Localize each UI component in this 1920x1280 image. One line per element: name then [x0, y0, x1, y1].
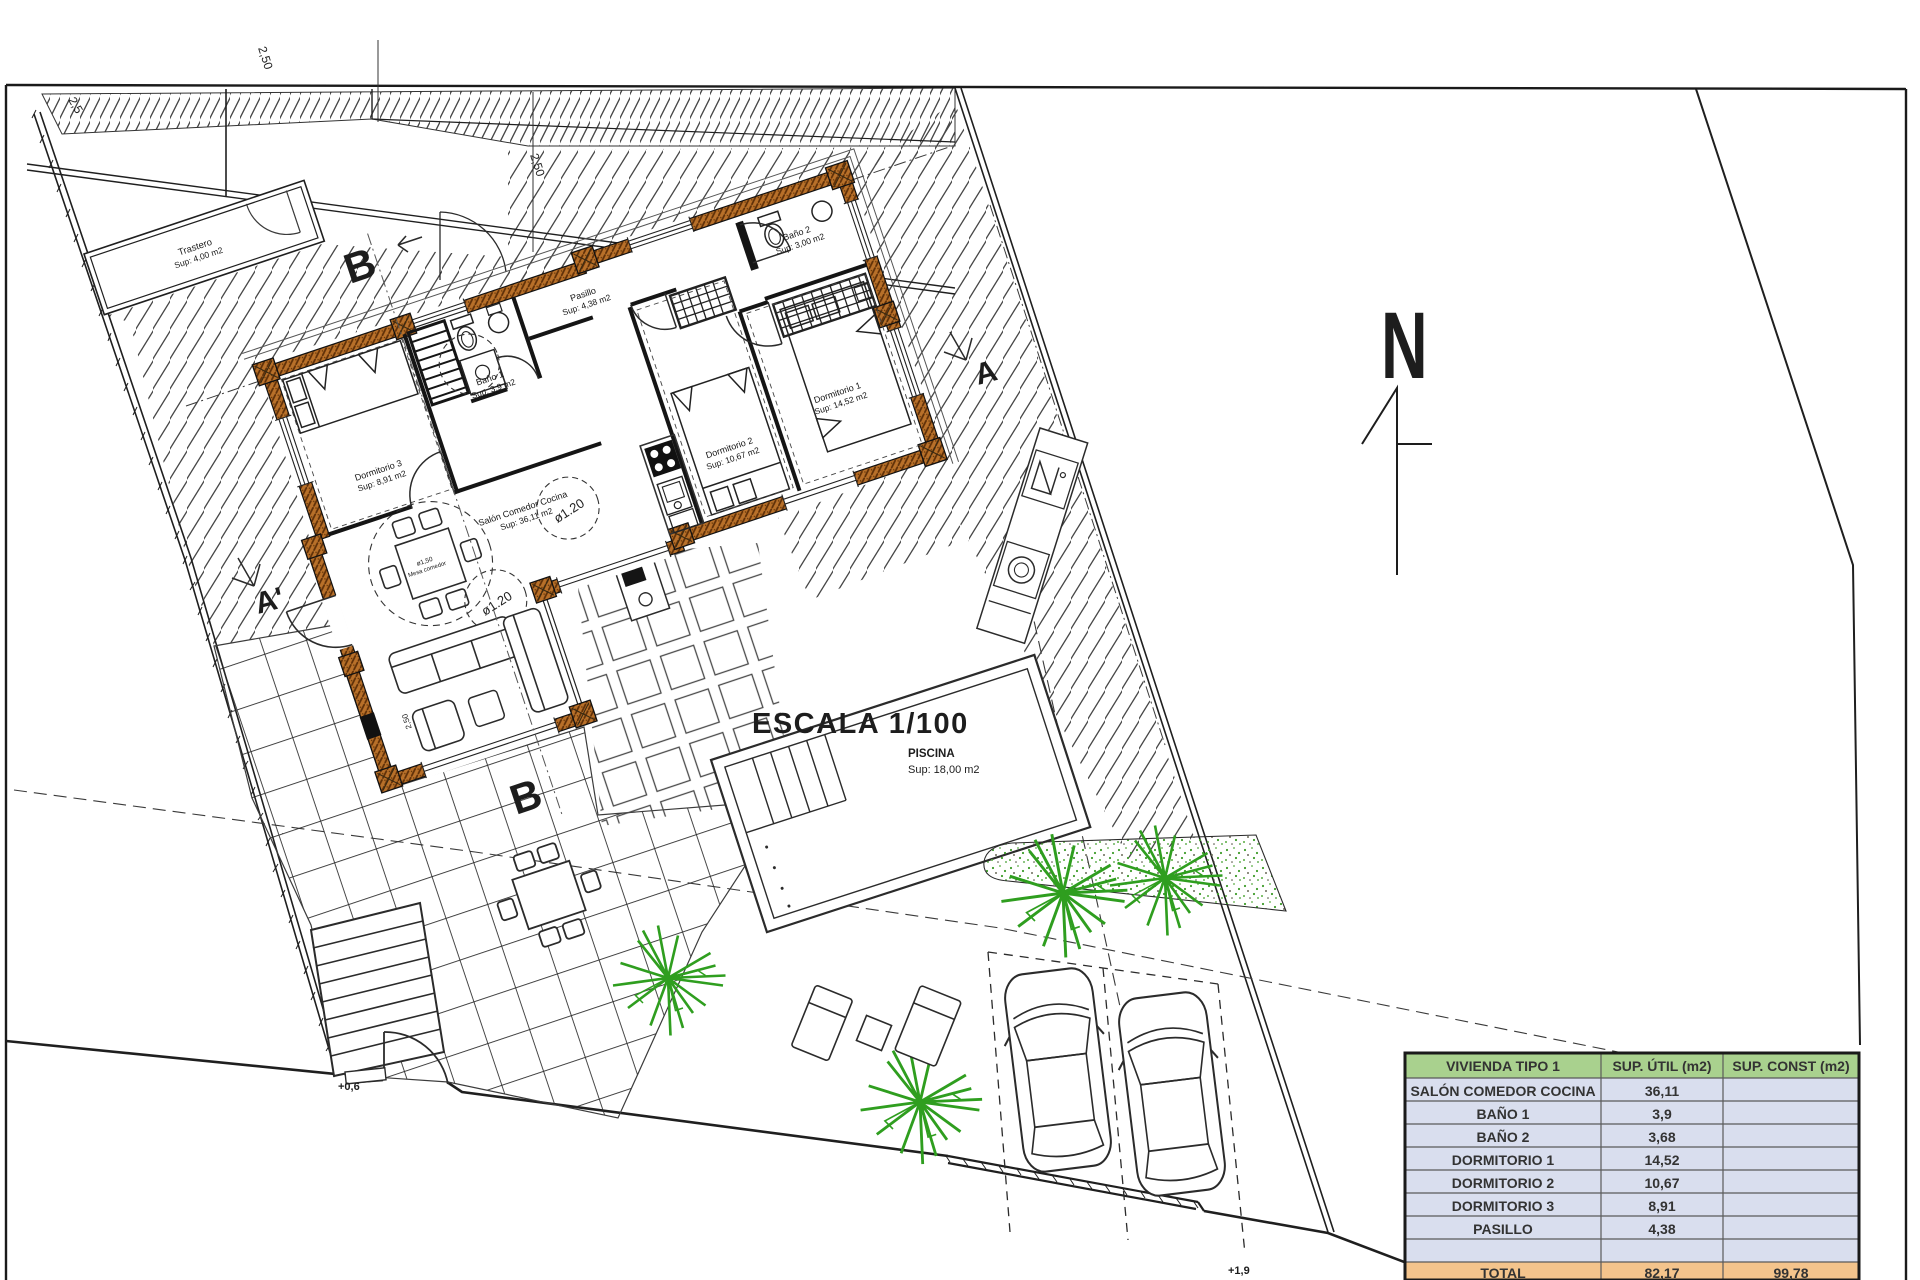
- svg-text:ESCALA 1/100: ESCALA 1/100: [752, 708, 969, 740]
- svg-text:PISCINA: PISCINA: [908, 748, 955, 760]
- svg-text:TOTAL: TOTAL: [1480, 1265, 1526, 1280]
- svg-text:SUP. CONST (m2): SUP. CONST (m2): [1732, 1058, 1849, 1074]
- svg-text:DORMITORIO 2: DORMITORIO 2: [1452, 1175, 1555, 1191]
- svg-text:14,52: 14,52: [1644, 1152, 1679, 1168]
- svg-text:VIVIENDA TIPO 1: VIVIENDA TIPO 1: [1446, 1058, 1560, 1074]
- svg-text:10,67: 10,67: [1644, 1175, 1679, 1191]
- svg-text:82,17: 82,17: [1644, 1265, 1679, 1280]
- svg-text:PASILLO: PASILLO: [1473, 1221, 1533, 1237]
- svg-text:36,11: 36,11: [1645, 1083, 1679, 1099]
- svg-text:99,78: 99,78: [1773, 1265, 1808, 1280]
- svg-text:Sup: 18,00 m2: Sup: 18,00 m2: [908, 764, 980, 776]
- svg-text:4,38: 4,38: [1648, 1221, 1675, 1237]
- svg-text:BAÑO 1: BAÑO 1: [1477, 1105, 1530, 1122]
- svg-text:N: N: [1381, 293, 1428, 399]
- svg-text:+1,9: +1,9: [1228, 1265, 1250, 1277]
- svg-text:DORMITORIO 1: DORMITORIO 1: [1452, 1152, 1555, 1168]
- svg-text:+0,6: +0,6: [338, 1081, 360, 1093]
- svg-text:3,68: 3,68: [1648, 1129, 1675, 1145]
- svg-text:SALÓN COMEDOR COCINA: SALÓN COMEDOR COCINA: [1410, 1082, 1595, 1099]
- svg-text:8,91: 8,91: [1648, 1198, 1675, 1214]
- svg-text:DORMITORIO 3: DORMITORIO 3: [1452, 1198, 1555, 1214]
- svg-text:BAÑO 2: BAÑO 2: [1477, 1128, 1530, 1145]
- svg-text:3,9: 3,9: [1652, 1106, 1672, 1122]
- svg-text:SUP. ÚTIL (m2): SUP. ÚTIL (m2): [1612, 1057, 1711, 1074]
